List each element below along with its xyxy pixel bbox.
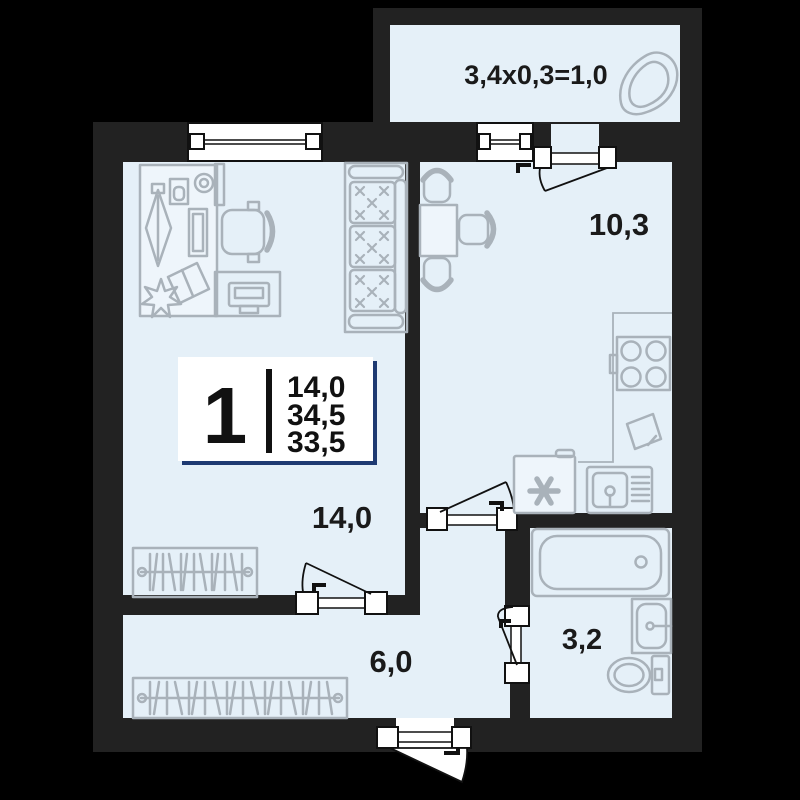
living-label: 14,0 [312,500,372,535]
dining-table [420,205,457,256]
floor-plan: 3,4x0,3=1,0 10,3 14,0 6,0 3,2 1 14,0 34,… [0,0,800,800]
apartment-info-badge: 1 14,0 34,5 33,5 [178,357,377,465]
wall-bath-lower [510,681,530,718]
door-handle-icon [489,501,504,505]
balcony-wall-left [373,8,390,122]
door-handle-icon [499,619,511,623]
balcony-wall-top [373,8,702,25]
kitchen-label: 10,3 [589,207,649,242]
kitchen-window [477,123,533,161]
door-handle-icon [312,583,326,587]
door-handle-icon [516,163,531,167]
wall-right [672,122,702,752]
floor-plan-page: 3,4x0,3=1,0 10,3 14,0 6,0 3,2 1 14,0 34,… [0,0,800,800]
desk-workstation [140,164,224,317]
living-room-window [188,123,322,161]
bathroom-label: 3,2 [562,624,602,656]
fridge [514,450,575,513]
badge-area-without-balcony: 33,5 [287,426,345,459]
hallway-floor [123,615,510,718]
badge-divider [266,369,272,453]
corridor-floor [420,528,505,615]
wall-left [93,122,123,752]
wall-bath-upper [505,528,530,612]
hall-label: 6,0 [369,644,412,679]
badge-rooms-count: 1 [203,371,248,460]
balcony-wall-right [680,8,702,122]
balcony-label: 3,4x0,3=1,0 [464,60,607,90]
